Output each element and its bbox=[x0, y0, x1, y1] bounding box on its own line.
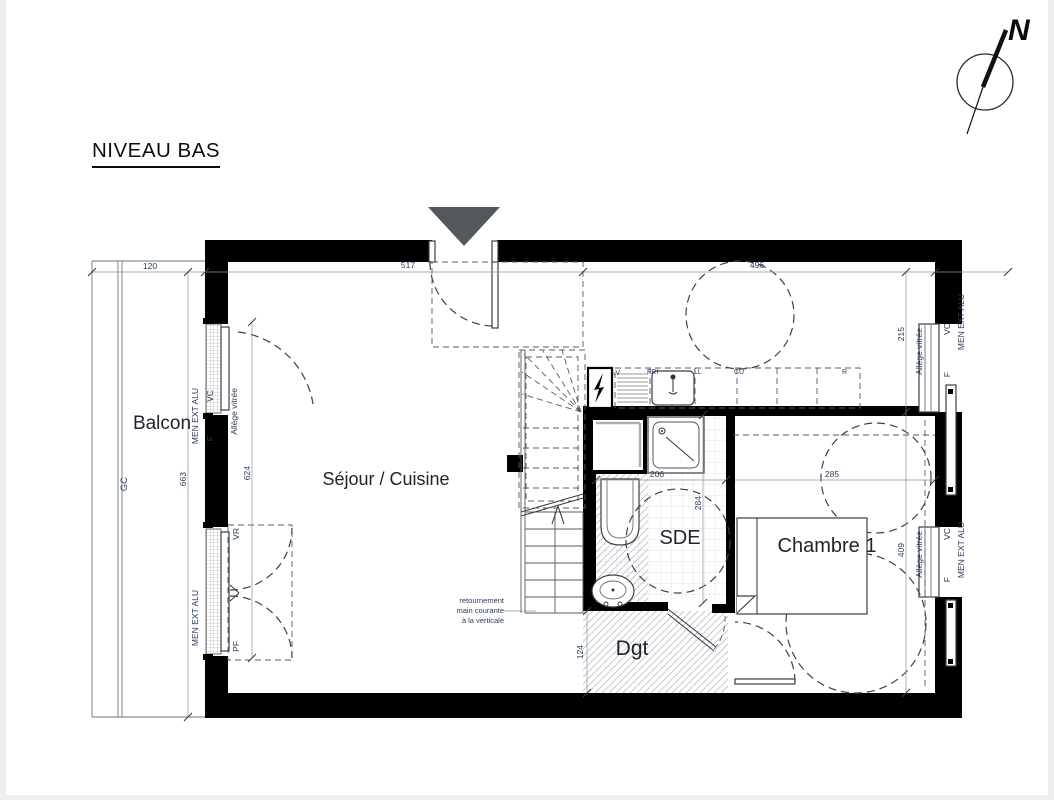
floor-plan-drawing bbox=[0, 0, 1054, 800]
label-allege-vitree-right-lower: Allège vitrée bbox=[915, 531, 924, 578]
stair-up-arrow-icon bbox=[552, 506, 564, 524]
kitchen-label-fri: FRI bbox=[647, 369, 658, 376]
shower-icon bbox=[648, 417, 704, 473]
toilet-icon bbox=[601, 479, 639, 545]
compass-north-label: N bbox=[1008, 14, 1030, 48]
room-label-sejour-cuisine: Séjour / Cuisine bbox=[298, 470, 474, 488]
dim-284: 284 bbox=[694, 496, 703, 510]
entrance-arrow-icon bbox=[428, 207, 500, 246]
label-men-ext-alu-left-upper: MEN EXT ALU bbox=[191, 388, 200, 444]
compass-icon bbox=[957, 30, 1013, 134]
dim-285: 285 bbox=[812, 470, 852, 479]
dishwasher-racks-icon bbox=[617, 374, 648, 402]
kitchen-label-r: R bbox=[842, 369, 847, 376]
chambre-door bbox=[735, 679, 795, 684]
label-men-ext-alu-right-upper: MEN EXT ALU bbox=[957, 294, 966, 350]
dim-124: 124 bbox=[576, 645, 585, 659]
kitchen-label-lv: LV bbox=[612, 370, 620, 377]
kitchen-label-cu: CU bbox=[734, 369, 744, 376]
label-f-right-lower: F bbox=[943, 577, 952, 582]
washbasin-icon bbox=[592, 575, 634, 607]
kitchen-counter bbox=[588, 368, 860, 408]
room-label-chambre1: Chambre 1 bbox=[762, 536, 892, 556]
label-men-ext-alu-right-lower: MEN EXT ALU bbox=[957, 522, 966, 578]
dim-663: 663 bbox=[179, 472, 188, 486]
dim-409: 409 bbox=[897, 543, 906, 557]
label-f-left-upper: F bbox=[206, 436, 215, 441]
bed-icon bbox=[737, 518, 867, 614]
room-label-dgt: Dgt bbox=[602, 638, 662, 659]
entrance bbox=[428, 207, 583, 347]
label-vc-right-lower: VC bbox=[943, 528, 952, 540]
room-label-sde: SDE bbox=[650, 528, 710, 548]
label-allege-vitree-left: Allège vitrée bbox=[230, 388, 239, 435]
dim-624: 624 bbox=[243, 466, 252, 480]
label-vc-right-upper: VC bbox=[943, 323, 952, 335]
label-allege-vitree-right-upper: Allège vitrée bbox=[915, 328, 924, 375]
handrail-note-line3: à la verticale bbox=[424, 617, 504, 625]
duct-icon bbox=[591, 418, 645, 472]
label-men-ext-alu-left-lower: MEN EXT ALU bbox=[191, 590, 200, 646]
turning-circle-entrance bbox=[686, 261, 794, 369]
label-vc-left-upper: VC bbox=[206, 390, 215, 402]
label-gc: GC bbox=[120, 477, 130, 491]
dim-206: 206 bbox=[637, 470, 677, 479]
kitchen-label-ll: LL bbox=[694, 369, 702, 376]
floor-plan-page: NIVEAU BAS N Balcon Séjour / Cuisine SDE… bbox=[0, 0, 1054, 800]
label-pf: PF bbox=[232, 641, 241, 652]
handrail-note-line2: main courante bbox=[424, 607, 504, 615]
handrail-note-line1: retournement bbox=[424, 597, 504, 605]
stairs bbox=[519, 350, 585, 613]
dim-120: 120 bbox=[130, 262, 170, 271]
label-f-right-upper: F bbox=[943, 372, 952, 377]
dim-517: 517 bbox=[388, 261, 428, 270]
room-label-balcon: Balcon bbox=[105, 414, 219, 433]
page-title: NIVEAU BAS bbox=[92, 139, 220, 168]
dim-215: 215 bbox=[897, 327, 906, 341]
dim-496: 496 bbox=[737, 261, 777, 270]
label-vr: VR bbox=[232, 528, 241, 540]
